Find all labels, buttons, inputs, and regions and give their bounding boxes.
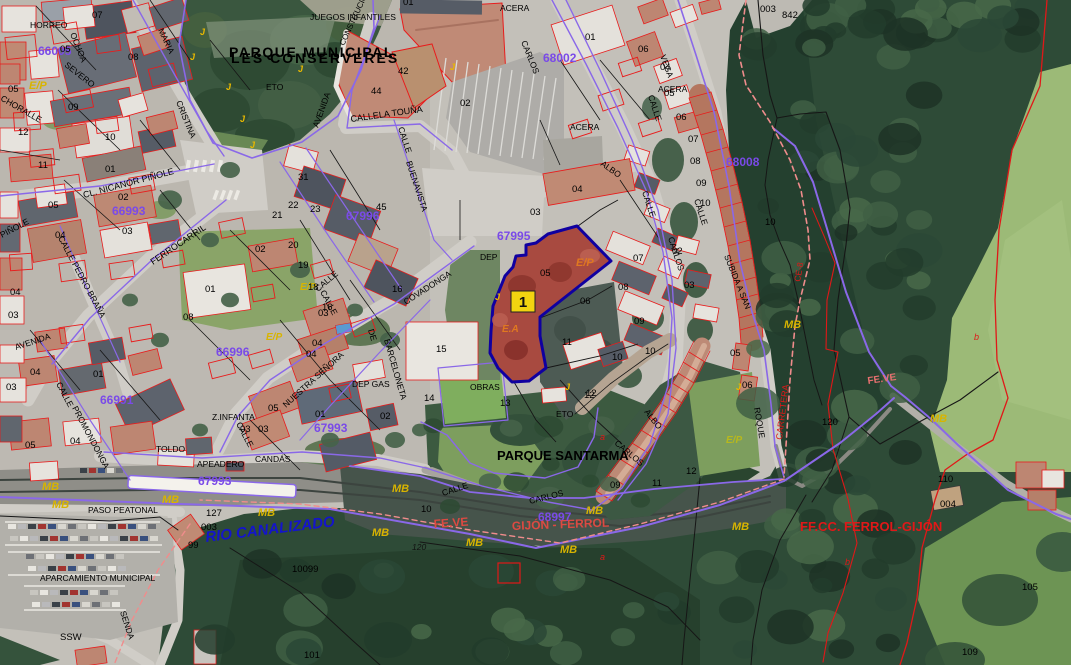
svg-text:04: 04 (55, 230, 66, 241)
svg-text:12: 12 (18, 127, 29, 138)
svg-text:10: 10 (765, 217, 776, 228)
svg-text:E/P: E/P (266, 332, 282, 343)
svg-text:Z.INFANTA: Z.INFANTA (212, 412, 255, 422)
svg-text:03: 03 (8, 310, 19, 321)
svg-text:05: 05 (25, 440, 36, 451)
svg-text:110: 110 (938, 474, 953, 485)
svg-text:09: 09 (696, 178, 707, 189)
svg-text:PASO PEATONAL: PASO PEATONAL (88, 505, 158, 515)
svg-text:a: a (600, 552, 605, 562)
svg-text:04: 04 (312, 338, 323, 349)
svg-text:05: 05 (730, 348, 741, 359)
svg-text:05: 05 (48, 200, 59, 211)
svg-text:21: 21 (272, 210, 283, 221)
svg-text:20: 20 (288, 240, 299, 251)
svg-text:67996: 67996 (346, 209, 380, 223)
svg-text:66991: 66991 (100, 393, 134, 407)
svg-text:31: 31 (298, 172, 309, 183)
svg-text:68002: 68002 (543, 51, 577, 65)
svg-text:MB: MB (784, 319, 801, 331)
svg-text:CANDÁS: CANDÁS (255, 454, 291, 464)
svg-text:04: 04 (10, 287, 21, 298)
svg-text:04: 04 (30, 367, 41, 378)
svg-text:03: 03 (240, 424, 251, 435)
svg-text:04: 04 (660, 62, 671, 73)
svg-text:11: 11 (562, 337, 572, 348)
svg-text:03: 03 (318, 308, 329, 319)
svg-text:a: a (600, 432, 605, 442)
svg-text:01: 01 (93, 369, 104, 380)
svg-text:01: 01 (105, 164, 116, 175)
svg-text:HORREO: HORREO (30, 20, 68, 30)
svg-text:03: 03 (530, 207, 541, 218)
svg-text:09: 09 (610, 480, 621, 491)
svg-text:MB: MB (466, 537, 483, 549)
svg-text:DEP: DEP (480, 252, 498, 262)
svg-text:08: 08 (690, 156, 701, 167)
svg-text:18: 18 (308, 282, 319, 293)
svg-text:120: 120 (822, 417, 838, 428)
svg-text:08: 08 (128, 52, 139, 63)
svg-text:01: 01 (315, 409, 326, 420)
svg-text:109: 109 (962, 647, 978, 658)
svg-text:23: 23 (310, 204, 321, 215)
svg-text:03: 03 (6, 382, 17, 393)
svg-text:68008: 68008 (726, 155, 760, 169)
svg-text:004: 004 (940, 499, 956, 510)
svg-text:14: 14 (424, 393, 435, 404)
svg-text:b: b (974, 332, 979, 342)
svg-text:MB: MB (162, 494, 179, 506)
svg-text:06: 06 (742, 380, 753, 391)
svg-text:MB: MB (42, 481, 59, 493)
svg-text:MB: MB (52, 499, 69, 511)
svg-text:45: 45 (376, 202, 387, 213)
svg-text:842: 842 (782, 10, 798, 21)
svg-text:DEP GAS: DEP GAS (352, 379, 390, 389)
svg-text:01: 01 (205, 284, 216, 295)
svg-text:05: 05 (664, 88, 675, 99)
svg-text:15: 15 (436, 344, 447, 355)
svg-text:12: 12 (584, 390, 595, 401)
svg-text:05: 05 (8, 84, 19, 95)
svg-text:105: 105 (1022, 582, 1038, 593)
svg-text:01: 01 (585, 32, 596, 43)
svg-text:02: 02 (255, 244, 266, 255)
svg-text:ACERA: ACERA (500, 3, 530, 13)
svg-text:1: 1 (519, 294, 527, 311)
svg-text:10: 10 (645, 346, 656, 357)
svg-text:13: 13 (500, 398, 511, 409)
svg-text:07: 07 (92, 10, 103, 21)
svg-text:22: 22 (288, 200, 299, 211)
svg-text:ETO: ETO (266, 82, 284, 92)
svg-text:01: 01 (403, 0, 414, 8)
svg-text:11: 11 (652, 478, 662, 489)
svg-text:06: 06 (638, 44, 649, 55)
svg-text:MB: MB (930, 413, 947, 425)
svg-text:07: 07 (688, 134, 699, 145)
svg-text:120: 120 (412, 542, 426, 552)
svg-text:16: 16 (392, 284, 403, 295)
svg-text:127: 127 (206, 508, 222, 519)
svg-text:06: 06 (580, 296, 591, 307)
svg-text:10: 10 (700, 198, 711, 209)
svg-text:07: 07 (633, 253, 644, 264)
svg-text:FF.CC. FERROL-GIJÓN: FF.CC. FERROL-GIJÓN (800, 519, 942, 534)
svg-text:LES CONSERVERES: LES CONSERVERES (231, 50, 399, 66)
svg-text:66996: 66996 (216, 345, 250, 359)
svg-text:04: 04 (572, 184, 583, 195)
svg-text:99: 99 (188, 540, 199, 551)
svg-text:02: 02 (672, 246, 683, 257)
svg-text:SSW: SSW (60, 632, 82, 643)
svg-text:MB: MB (560, 544, 577, 556)
svg-text:67993: 67993 (314, 421, 348, 435)
svg-text:MB: MB (586, 505, 603, 517)
svg-text:19: 19 (298, 260, 309, 271)
svg-text:MB: MB (392, 483, 409, 495)
svg-text:04: 04 (70, 436, 81, 447)
svg-text:02: 02 (118, 192, 129, 203)
svg-text:MB: MB (258, 507, 275, 519)
svg-text:E/P: E/P (726, 435, 742, 446)
svg-text:02: 02 (380, 411, 391, 422)
svg-text:09: 09 (68, 102, 79, 113)
svg-text:67995: 67995 (497, 229, 531, 243)
svg-text:09: 09 (634, 316, 645, 327)
svg-text:05: 05 (60, 44, 71, 55)
svg-text:67993: 67993 (198, 474, 232, 488)
svg-text:ACERA: ACERA (570, 122, 600, 132)
svg-text:11: 11 (38, 160, 48, 171)
svg-text:003: 003 (201, 522, 217, 533)
svg-text:05: 05 (268, 403, 279, 414)
svg-text:003: 003 (760, 4, 776, 15)
svg-text:10: 10 (421, 504, 432, 515)
svg-text:12: 12 (686, 466, 697, 477)
svg-text:04: 04 (306, 349, 317, 360)
svg-text:FE.VE: FE.VE (433, 515, 469, 531)
svg-text:03: 03 (684, 280, 695, 291)
svg-text:MB: MB (372, 527, 389, 539)
svg-text:OBRAS: OBRAS (470, 382, 500, 392)
svg-text:02: 02 (460, 98, 471, 109)
svg-text:03: 03 (122, 226, 133, 237)
svg-text:MB: MB (732, 521, 749, 533)
svg-text:TOLDO: TOLDO (156, 444, 186, 454)
svg-text:10: 10 (612, 352, 623, 363)
svg-text:APEADERO: APEADERO (197, 459, 245, 469)
svg-text:08: 08 (183, 312, 194, 323)
svg-text:44: 44 (371, 86, 382, 97)
svg-text:E.A: E.A (502, 324, 519, 335)
svg-text:101: 101 (304, 650, 320, 661)
svg-text:10099: 10099 (292, 564, 318, 575)
svg-text:06: 06 (676, 112, 687, 123)
svg-text:42: 42 (398, 66, 409, 77)
svg-text:E/P: E/P (576, 257, 594, 269)
svg-text:66993: 66993 (112, 204, 146, 218)
svg-text:E/P: E/P (29, 80, 47, 92)
svg-text:08: 08 (618, 282, 629, 293)
svg-text:APARCAMIENTO MUNICIPAL: APARCAMIENTO MUNICIPAL (40, 573, 156, 583)
svg-text:ETO: ETO (556, 409, 574, 419)
svg-text:10: 10 (105, 132, 116, 143)
svg-text:05: 05 (540, 268, 551, 279)
svg-text:b: b (845, 557, 850, 567)
svg-text:PARQUE SANTARMA: PARQUE SANTARMA (497, 448, 629, 463)
svg-text:03: 03 (258, 424, 269, 435)
